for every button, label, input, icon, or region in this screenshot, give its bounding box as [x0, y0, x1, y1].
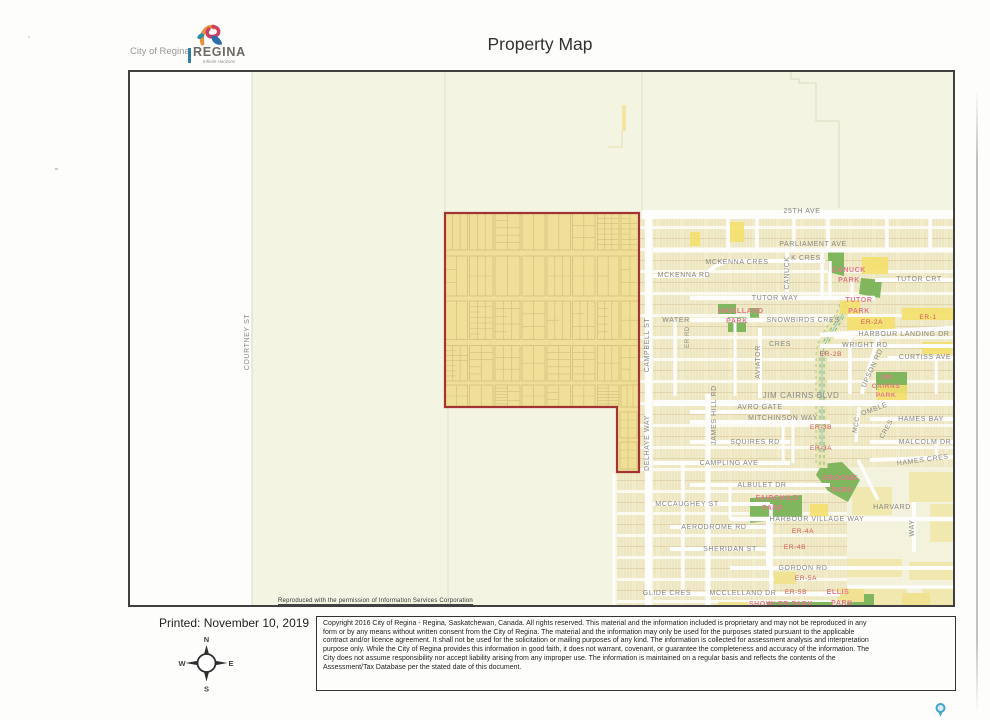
svg-text:SNOWBIRDS CRES: SNOWBIRDS CRES [767, 317, 840, 324]
svg-text:ALBULET DR: ALBULET DR [737, 482, 786, 489]
svg-text:GROOME: GROOME [822, 475, 858, 482]
svg-text:ER-3A: ER-3A [810, 445, 832, 452]
svg-text:JAMES HILL RD: JAMES HILL RD [711, 385, 718, 445]
svg-text:ER RD: ER RD [685, 326, 691, 348]
svg-text:HARVARD: HARVARD [873, 504, 911, 511]
svg-text:ER-1: ER-1 [919, 314, 936, 321]
svg-text:TUTOR CRT: TUTOR CRT [896, 276, 942, 283]
svg-text:W: W [178, 659, 186, 668]
svg-text:COURTNEY ST: COURTNEY ST [244, 314, 251, 371]
svg-text:TUTOR WAY: TUTOR WAY [752, 295, 799, 302]
svg-text:MCCLELLAND DR: MCCLELLAND DR [710, 590, 777, 597]
svg-text:AVIATOR: AVIATOR [755, 345, 762, 379]
svg-text:CAIRNS: CAIRNS [872, 383, 901, 390]
svg-text:CANUCK: CANUCK [832, 267, 866, 274]
svg-text:SHOWLER PARK: SHOWLER PARK [749, 601, 813, 605]
svg-text:PARK: PARK [831, 600, 853, 605]
svg-text:ER-5A: ER-5A [795, 575, 817, 582]
svg-text:JIM CAIRNS BLVD: JIM CAIRNS BLVD [763, 391, 840, 400]
svg-text:CAMPBELL ST: CAMPBELL ST [644, 318, 651, 373]
svg-text:HAMES BAY: HAMES BAY [898, 416, 944, 423]
svg-text:ER-4A: ER-4A [792, 528, 814, 535]
svg-text:CANUCK: CANUCK [784, 256, 791, 289]
svg-text:MCKENNA RD: MCKENNA RD [658, 272, 711, 279]
svg-text:PARK: PARK [831, 487, 853, 494]
svg-text:WATER: WATER [662, 317, 690, 324]
svg-text:WAY: WAY [909, 520, 916, 537]
svg-text:PARLIAMENT AVE: PARLIAMENT AVE [779, 241, 847, 248]
svg-text:ER-4B: ER-4B [784, 544, 806, 551]
svg-text:MCCAUGHEY ST: MCCAUGHEY ST [655, 501, 719, 508]
svg-text:MITCHINSON WAY: MITCHINSON WAY [748, 415, 818, 422]
svg-text:CURTISS AVE: CURTISS AVE [899, 354, 951, 361]
svg-text:WRIGHT RD: WRIGHT RD [842, 342, 888, 349]
svg-text:MALCOLM DR: MALCOLM DR [899, 439, 952, 446]
svg-text:PARK: PARK [876, 392, 896, 399]
svg-text:SHERIDAN ST: SHERIDAN ST [703, 546, 757, 553]
svg-text:DELHAYE WAY: DELHAYE WAY [644, 415, 651, 471]
svg-text:GORDON RD: GORDON RD [779, 565, 828, 572]
svg-text:GLIDE CRES: GLIDE CRES [643, 590, 691, 597]
svg-text:HARBOUR LANDING DR: HARBOUR LANDING DR [859, 331, 950, 338]
svg-text:ELLIS: ELLIS [827, 589, 850, 596]
svg-text:AVRO GATE: AVRO GATE [737, 404, 782, 411]
svg-text:TUTOR: TUTOR [846, 297, 873, 304]
svg-text:MCKENNA CRES: MCKENNA CRES [705, 259, 768, 266]
svg-text:HARBOUR VILLAGE WAY: HARBOUR VILLAGE WAY [770, 516, 865, 523]
svg-text:ER-2B: ER-2B [820, 351, 842, 358]
svg-text:PARK: PARK [838, 277, 860, 284]
svg-text:ER-5B: ER-5B [785, 589, 807, 596]
svg-text:25TH AVE: 25TH AVE [784, 208, 821, 215]
svg-text:PARK: PARK [726, 318, 748, 325]
svg-text:ER-3B: ER-3B [810, 424, 832, 431]
svg-text:E: E [228, 659, 233, 668]
svg-text:K CRES: K CRES [791, 255, 821, 262]
svg-text:ER-2A: ER-2A [861, 319, 883, 326]
svg-text:SQUIRES RD: SQUIRES RD [730, 439, 780, 446]
svg-text:CAMPLING AVE: CAMPLING AVE [700, 460, 759, 467]
svg-text:N: N [204, 635, 209, 644]
svg-text:FAIRCHILD: FAIRCHILD [756, 495, 799, 502]
svg-text:PARK: PARK [848, 308, 870, 315]
svg-text:S: S [204, 685, 209, 694]
svg-text:PARK: PARK [762, 505, 784, 512]
svg-text:CRES: CRES [769, 341, 791, 348]
svg-text:HAVILLAND: HAVILLAND [718, 308, 763, 315]
svg-text:JIM: JIM [880, 374, 893, 381]
svg-text:AERODROME RD: AERODROME RD [681, 524, 746, 531]
